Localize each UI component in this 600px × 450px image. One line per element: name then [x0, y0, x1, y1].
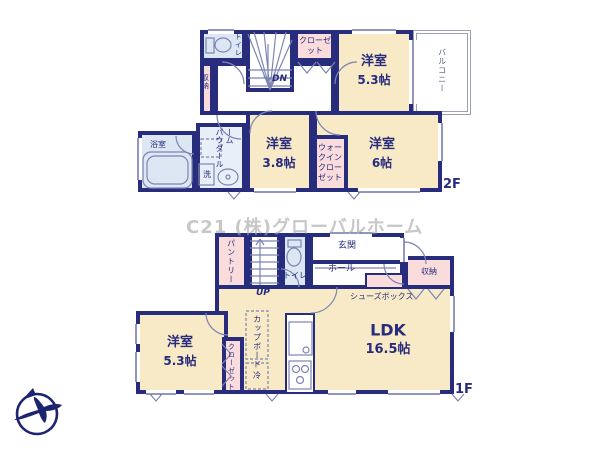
window: [254, 188, 296, 196]
window: [358, 188, 420, 196]
window: [328, 390, 356, 398]
label-stairs-dn: DN: [272, 74, 287, 85]
label-room53-2f-name: 洋室: [344, 54, 404, 70]
label-toilet-2f: トイレ: [234, 33, 242, 63]
window: [352, 26, 396, 34]
label-closet-1f: クローゼット: [227, 343, 235, 391]
label-wic: ウォークインクローゼット: [315, 143, 345, 183]
floor-label-1f: 1F: [455, 382, 473, 398]
window: [132, 324, 140, 344]
label-room6-size: 6帖: [352, 156, 412, 170]
label-ldk-name: LDK: [348, 320, 428, 339]
label-pantry: パントリー: [226, 239, 236, 287]
label-ldk-size: 16.5帖: [348, 342, 428, 358]
label-powder-room: パウダールーム: [214, 128, 234, 174]
label-hall: ホール: [328, 264, 355, 275]
window: [438, 123, 446, 161]
entrance-door-opening: [400, 238, 408, 262]
window: [132, 352, 140, 382]
bird-icon: [14, 397, 62, 423]
label-shoe-box: シューズボックス: [350, 292, 413, 302]
window: [146, 390, 176, 398]
window: [450, 296, 458, 332]
label-room38-name: 洋室: [249, 137, 309, 153]
floor-plan: C21 (株)グローバルホーム トイレ クローゼット DN 収納 洋室 5.3帖…: [0, 0, 600, 450]
label-closet-2f: クローゼット: [297, 36, 333, 56]
label-room53-1f-size: 5.3帖: [150, 354, 210, 368]
label-room38-size: 3.8帖: [249, 156, 309, 170]
label-room53-2f-size: 5.3帖: [344, 73, 404, 87]
label-room53-1f-name: 洋室: [150, 335, 210, 351]
label-storage-2f: 収納: [201, 74, 209, 104]
bird-wing-icon: [22, 388, 36, 400]
window: [134, 138, 142, 180]
kitchen-counter: [285, 313, 315, 394]
room-2f-bath: [138, 131, 196, 192]
window-sliding: [388, 390, 440, 398]
window: [184, 390, 214, 398]
label-bath: 浴室: [150, 140, 166, 150]
room-1f-stairs: [248, 233, 281, 289]
label-storage-1f: 収納: [409, 267, 449, 277]
window-balcony-door: [409, 40, 417, 104]
label-stairs-up: UP: [256, 288, 270, 299]
label-entrance: 玄関: [338, 241, 356, 252]
watermark-text: C21 (株)グローバルホーム: [186, 213, 423, 239]
label-fridge: 冷: [253, 371, 261, 381]
floor-label-2f: 2F: [443, 177, 461, 193]
company-logo: [10, 384, 64, 440]
label-washer: 洗: [203, 170, 211, 180]
label-cupboard: カップボード: [252, 315, 262, 359]
shoe-cabinet: [365, 273, 404, 289]
label-toilet-1f: トイレ: [283, 271, 307, 281]
label-room6-name: 洋室: [352, 137, 412, 153]
room-1f-toilet: [281, 233, 309, 289]
room-1f-yoshitsu-53: [136, 311, 228, 394]
label-balcony: バルコニー: [437, 48, 447, 100]
window: [208, 26, 234, 34]
